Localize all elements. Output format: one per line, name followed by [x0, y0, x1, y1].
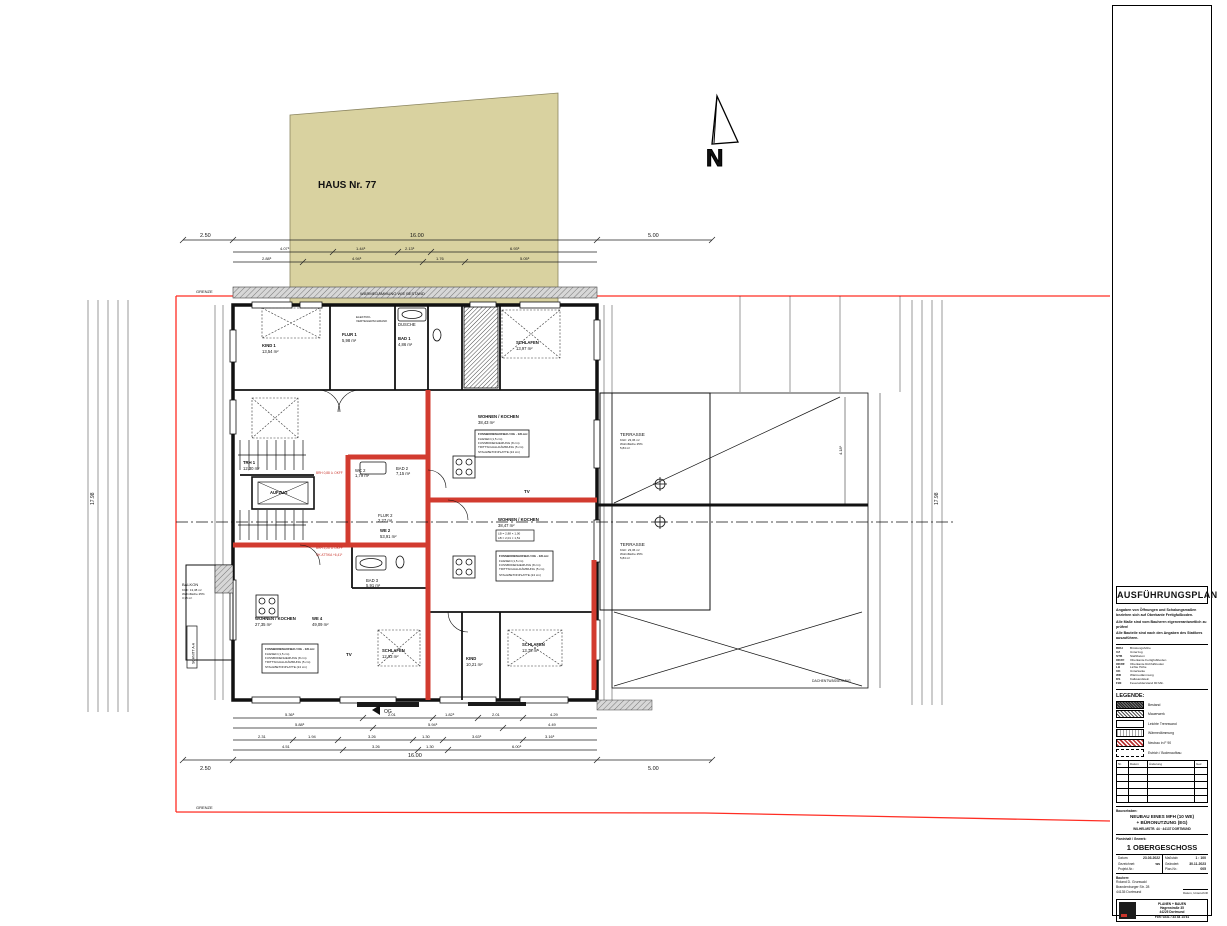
rev-header: Datum	[1129, 760, 1148, 767]
note-line: FUSSBODENAUFBAU OG · 1/8 cm:	[265, 647, 315, 651]
legend-swatch	[1116, 749, 1144, 757]
client-section: Bauherr: Roland D. Grunwald Brandenburge…	[1116, 876, 1208, 894]
legend-swatch	[1116, 701, 1144, 709]
room-label: SCHLAFEN	[382, 648, 405, 653]
room-area: 1,79 m²	[355, 473, 370, 478]
boundary-label-bottom: GRENZE	[196, 805, 213, 810]
dim-label: 6.00⁵	[512, 744, 522, 749]
balcony-line: 3,35 m²	[182, 596, 192, 600]
legend-swatch	[1116, 710, 1144, 718]
dim-label: 5.36⁵	[285, 712, 295, 717]
note-line: LB = 2,88 × 1,00	[498, 532, 521, 536]
floor-note-box: FUSSBODENAUFBAU OG · 1/8 cm: FLIESEN (1,…	[262, 644, 318, 673]
bauherr-line: 44135 Dortmund	[1116, 890, 1149, 895]
dim-label: 4.49	[548, 722, 557, 727]
dim-label: 1.82⁵	[445, 712, 455, 717]
note-line: LB = 2,01 × 1,51	[498, 536, 521, 540]
dim-label: 16.00	[410, 233, 424, 239]
shaft-hatch	[464, 307, 498, 388]
dim-label: 3.26	[372, 744, 381, 749]
room-label: WE 4	[312, 616, 323, 621]
room-label: SCHLAFEN	[516, 340, 539, 345]
architect-stamp: PLANEN + BAUEN Hagenstraße 35 44225 Dort…	[1116, 899, 1208, 922]
level-marker-label: OG	[384, 709, 392, 715]
rev-header: Änderung	[1148, 760, 1195, 767]
room-label: BAD 1	[398, 336, 411, 341]
dim-label: 1.44⁵	[356, 246, 366, 251]
rev-header: Nr.	[1117, 760, 1129, 767]
floor-note-box: FUSSBODENAUFBAU OG · 1/8 cm: FLIESEN (1,…	[475, 430, 529, 457]
note-line: TRITTSCHALLDÄMMUNG (5 cm)	[478, 445, 523, 449]
legend-swatch	[1116, 729, 1144, 737]
red-note: BRH 0,88 ü. OKFF	[316, 471, 343, 475]
note-line: FUSSBODENAUFBAU OG · 1/8 cm:	[478, 432, 528, 436]
dim-label: 4.07⁵	[280, 246, 290, 251]
room-area: 5,98 m²	[342, 338, 357, 343]
room-label: AUFZUG	[270, 490, 287, 495]
note-line: TRITTSCHALLDÄMMUNG (5 cm)	[265, 660, 310, 664]
dim-label: 4.29	[550, 712, 559, 717]
boundary-label-top: GRENZE	[196, 289, 213, 294]
firm-line: Fon: 0231 / 33 44 14 61	[1139, 915, 1205, 919]
dim-label: 2.13⁵	[405, 246, 415, 251]
terrace-label: TERRASSE KGF: 23,36 m² Wohnfläche 25% 5,…	[620, 542, 645, 560]
legend-title: LEGENDE:	[1116, 693, 1208, 699]
bauvorhaben-label: Bauvorhaben:	[1116, 809, 1208, 813]
dim-label: 5.05⁵	[520, 256, 530, 261]
plan-type-title: AUSFÜHRUNGSPLAN	[1116, 586, 1208, 604]
terrace-label: TERRASSE KGF: 23,36 m² Wohnfläche 25% 5,…	[620, 432, 645, 450]
dim-label: 3.63⁵	[472, 734, 482, 739]
room-label: SCHLAFEN	[522, 642, 545, 647]
room-label: KIND	[466, 656, 476, 661]
project-line: + BÜRONUTZUNG (EG)	[1116, 820, 1208, 826]
insulation-band: WÄRMEDÄMMUNG WIE BESTAND	[233, 287, 597, 298]
dim-right-overall: 17.98	[934, 492, 940, 505]
terrace-name: TERRASSE	[620, 542, 645, 547]
room-area: 27,35 m²	[255, 622, 272, 627]
dim-label: 2.31	[258, 734, 267, 739]
room-area: 13,54 m²	[262, 349, 279, 354]
dimension-chain-bottom	[180, 715, 715, 763]
note-line: STAHLBETONPLATTE (24 cm)	[265, 665, 307, 669]
project-section: Bauvorhaben: NEUBAU EINES MFH (10 WE) + …	[1116, 806, 1208, 831]
general-note: Alle Bauteile sind nach den Angaben des …	[1116, 631, 1208, 641]
room-area: 12,93 m²	[382, 654, 399, 659]
room-area: 12,30 m²	[243, 466, 260, 471]
room-area: 4,86 m²	[398, 342, 413, 347]
plan-title-section: Planinhalt / Gewerk: 1 OBERGESCHOSS	[1116, 834, 1208, 852]
north-arrow-icon: N	[706, 96, 738, 172]
legend-label: Neubau in F 90	[1148, 741, 1171, 745]
red-note: OK ATTIKA +6,41⁵	[316, 553, 343, 557]
dim-label: 4.94⁵	[352, 256, 362, 261]
room-area: 53,91 m²	[380, 534, 397, 539]
dim-label: 2.50	[200, 766, 211, 772]
room-label: DUSCHE	[398, 322, 416, 327]
dimension-lines-right	[604, 296, 942, 705]
plan-title: 1 OBERGESCHOSS	[1116, 843, 1208, 852]
abbrev-val: Feuerwiderstand 90 Min.	[1130, 682, 1164, 686]
dim-label: 5.88⁵	[295, 722, 305, 727]
firm-logo	[1119, 902, 1136, 919]
insulation-band-label: WÄRMEDÄMMUNG WIE BESTAND	[360, 291, 425, 296]
dim-label: 16.00	[408, 753, 422, 759]
tv-label: TV	[346, 652, 352, 657]
title-block: AUSFÜHRUNGSPLAN Angaben von Öffnungen un…	[1112, 5, 1212, 916]
dim-label: 1.30	[426, 744, 435, 749]
dim-label: 4.51	[282, 744, 291, 749]
note-line: FUSSBODENAUFBAU OG · 1/8 cm:	[499, 554, 549, 558]
room-label: WOHNEN / KOCHEN	[255, 616, 296, 621]
roof-drain-label: DACHENTWÄSSERUNG	[812, 679, 851, 683]
note-line: STAHLBETONPLATTE (24 cm)	[478, 450, 520, 454]
room-area: 5,91 m²	[366, 583, 381, 588]
elektro-note: VERTEILERSCHRANK	[356, 319, 387, 323]
red-note: BRH 2,26 ü. OKFF	[316, 546, 343, 550]
field-value: 005	[1200, 867, 1206, 872]
dim-label: 1.94	[308, 734, 317, 739]
dim-label: 6.93⁵	[510, 246, 520, 251]
rev-header: Gez.	[1195, 760, 1208, 767]
room-area: 13,97 m²	[516, 346, 533, 351]
lb-note-box: LB = 2,88 × 1,00 LB = 2,01 × 1,51	[496, 530, 534, 541]
room-area: 38,43 m²	[478, 420, 495, 425]
legend-label: Leichte Trennwand	[1148, 722, 1177, 726]
room-label: WOHNEN / KOCHEN	[498, 517, 539, 522]
room-area: 13,78 m²	[522, 648, 539, 653]
legend-swatch	[1116, 720, 1144, 728]
field-label: Plan-Nr.:	[1165, 867, 1177, 872]
balcony-name: BALKON	[182, 582, 198, 587]
floor-note-box: FUSSBODENAUFBAU OG · 1/8 cm: FLIESEN (1,…	[496, 551, 553, 581]
plan-sheet: HAUS Nr. 77 N GRENZE GRENZE 17.98 17.98	[0, 0, 1227, 926]
tv-label: TV	[524, 489, 530, 494]
dim-label: 5.94⁵	[428, 722, 438, 727]
room-label: FLUR 1	[342, 332, 357, 337]
section-label: SCHNITT A-A	[192, 642, 196, 664]
project-line: NEUBAU EINES MFH (10 WE)	[1116, 814, 1208, 820]
room-label: WE 2	[380, 528, 391, 533]
dim-left-overall: 17.98	[90, 492, 96, 505]
north-letter: N	[706, 145, 723, 172]
terrace-name: TERRASSE	[620, 432, 645, 437]
dim-label: 4.18⁵	[838, 445, 843, 455]
general-note: Angaben von Öffnungen und Schalungsmaßen…	[1116, 608, 1208, 618]
room-area: 49,09 m²	[312, 622, 329, 627]
legend-label: Mauerwerk	[1148, 712, 1165, 716]
revision-table: Nr. Datum Änderung Gez.	[1116, 760, 1208, 803]
dim-label: 5.00	[648, 233, 659, 239]
dim-label: 5.00	[648, 766, 659, 772]
dim-label: 3.16⁵	[545, 734, 555, 739]
balcony-label: BALKON KGF: 13,38 m² Wohnfläche 25% 3,35…	[182, 582, 205, 600]
project-address: WILHELMSTR. 44 · 44137 DORTMUND	[1116, 827, 1208, 831]
note-line: STAHLBETONPLATTE (24 cm)	[499, 573, 541, 577]
legend-section: LEGENDE: Bestand Mauerwerk Leichte Trenn…	[1116, 689, 1208, 757]
general-note: Alle Maße sind vom Bauherrn eigenverantw…	[1116, 620, 1208, 630]
dim-label: 3.26	[368, 734, 377, 739]
note-line: TRITTSCHALLDÄMMUNG (5 cm)	[499, 567, 544, 571]
terrace-line: 5,84 m²	[620, 556, 630, 560]
legend-label: Estrich / Bodenaufbau	[1148, 751, 1181, 755]
room-label: WOHNEN / KOCHEN	[478, 414, 519, 419]
meta-fields: Datum:23.03.2022 Gezeichnet:ws Projekt-N…	[1116, 854, 1208, 874]
haus-77-label: HAUS Nr. 77	[318, 180, 377, 191]
floor-plan-drawing: HAUS Nr. 77 N GRENZE GRENZE 17.98 17.98	[0, 0, 1227, 926]
dim-label: 2.50	[200, 233, 211, 239]
terrace-line: 5,84 m²	[620, 446, 630, 450]
planinhalt-label: Planinhalt / Gewerk:	[1116, 837, 1208, 841]
dim-label: 2.01	[492, 712, 501, 717]
room-area: 7,15 m²	[396, 471, 411, 476]
legend-swatch	[1116, 739, 1144, 747]
legend-label: Wärmedämmung	[1148, 731, 1174, 735]
room-area: 38,47 m²	[498, 523, 515, 528]
field-value: ws	[1155, 862, 1160, 867]
room-label: TRH 1	[243, 460, 256, 465]
room-area: 10,21 m²	[466, 662, 483, 667]
room-label: KIND 1	[262, 343, 276, 348]
field-label: Projekt-Nr.:	[1118, 867, 1134, 872]
room-area: 2,27 m²	[378, 518, 393, 523]
dim-label: 1.30	[422, 734, 431, 739]
abbreviation-list: BRHBrüstungshöhe UZUnterzug STBStahlbeto…	[1116, 644, 1208, 686]
signature-line: Datum, Unterschrift	[1183, 889, 1208, 895]
legend-label: Bestand	[1148, 703, 1160, 707]
dimension-lines-left	[88, 300, 223, 712]
haus-77-footprint: HAUS Nr. 77	[290, 93, 558, 305]
abbrev-key: F90	[1116, 682, 1130, 686]
dim-label: 1.76	[436, 256, 445, 261]
dim-label: 2.88⁵	[262, 256, 272, 261]
